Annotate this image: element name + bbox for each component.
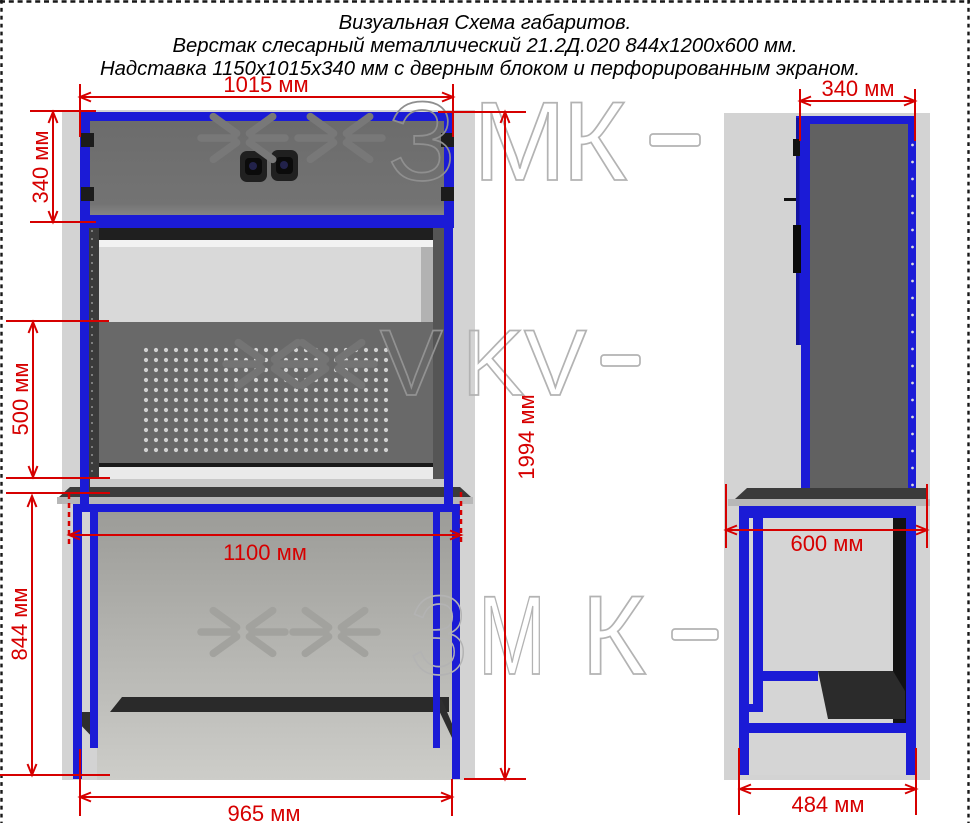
svg-text:1994 мм: 1994 мм (514, 394, 539, 479)
svg-text:600 мм: 600 мм (790, 531, 863, 556)
svg-text:Верстак слесарный металлически: Верстак слесарный металлический 21.2Д.02… (172, 35, 797, 57)
svg-text:V: V (380, 310, 443, 415)
svg-text:1100 мм: 1100 мм (223, 540, 307, 565)
svg-text:340 мм: 340 мм (821, 76, 894, 101)
svg-text:К: К (562, 79, 627, 204)
svg-text:К: К (581, 573, 646, 698)
svg-text:965 мм: 965 мм (227, 801, 300, 823)
svg-text:340 мм: 340 мм (28, 130, 53, 203)
svg-text:844 мм: 844 мм (7, 587, 32, 660)
svg-text:1015 мм: 1015 мм (223, 72, 308, 97)
svg-text:М: М (478, 573, 546, 698)
svg-text:Надставка 1150х1015х340 мм с д: Надставка 1150х1015х340 мм с дверным бло… (100, 58, 860, 80)
svg-text:484 мм: 484 мм (791, 792, 864, 817)
svg-text:М: М (473, 79, 566, 204)
svg-text:500 мм: 500 мм (8, 362, 33, 435)
svg-text:Визуальная Схема габаритов.: Визуальная Схема габаритов. (339, 12, 632, 34)
svg-text:З: З (410, 573, 468, 698)
